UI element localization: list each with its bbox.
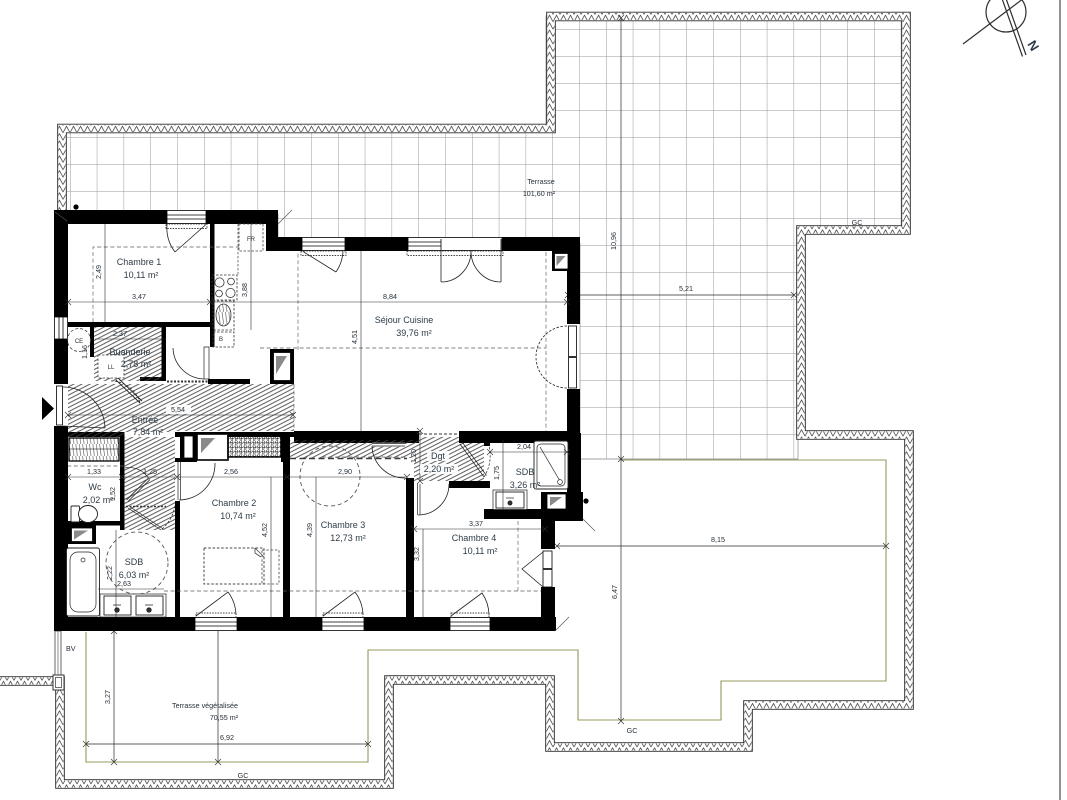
svg-text:3,47: 3,47: [132, 292, 146, 301]
svg-text:3,26 m²: 3,26 m²: [510, 480, 541, 490]
svg-text:Wc: Wc: [89, 482, 102, 492]
svg-text:Dgt: Dgt: [431, 451, 446, 461]
svg-text:4,52: 4,52: [260, 523, 269, 537]
svg-text:2,49: 2,49: [94, 265, 103, 279]
svg-text:39,76 m²: 39,76 m²: [396, 328, 432, 338]
svg-text:101,60 m²: 101,60 m²: [523, 189, 556, 198]
svg-text:Buanderie: Buanderie: [109, 347, 150, 357]
svg-text:10,11 m²: 10,11 m²: [124, 270, 159, 280]
svg-text:1,20: 1,20: [409, 449, 418, 463]
svg-text:70,55 m²: 70,55 m²: [210, 713, 239, 722]
svg-text:BV: BV: [66, 644, 76, 653]
svg-text:2,78 m²: 2,78 m²: [121, 359, 152, 369]
svg-text:3,88: 3,88: [240, 283, 249, 297]
svg-text:2,63: 2,63: [117, 579, 131, 588]
svg-text:8,84: 8,84: [383, 292, 397, 301]
svg-text:4,39: 4,39: [305, 523, 314, 537]
svg-text:5,54: 5,54: [171, 405, 185, 414]
svg-text:Séjour Cuisine: Séjour Cuisine: [375, 315, 434, 325]
svg-text:3,32: 3,32: [412, 547, 421, 561]
svg-text:10,11 m²: 10,11 m²: [463, 546, 498, 556]
svg-text:4,51: 4,51: [350, 330, 359, 344]
svg-text:Entrée: Entrée: [132, 415, 159, 425]
svg-text:6,03 m²: 6,03 m²: [119, 570, 150, 580]
svg-text:Chambre 4: Chambre 4: [452, 533, 497, 543]
svg-text:10,74 m²: 10,74 m²: [220, 511, 256, 521]
svg-text:GC: GC: [238, 771, 249, 780]
svg-text:2,37: 2,37: [113, 329, 127, 338]
svg-text:6,47: 6,47: [610, 585, 619, 599]
svg-text:1,25: 1,25: [143, 467, 157, 476]
svg-text:GC: GC: [627, 726, 638, 735]
svg-text:2,90: 2,90: [338, 467, 352, 476]
svg-text:FR: FR: [247, 237, 256, 243]
svg-text:B: B: [219, 337, 223, 343]
svg-text:2,22: 2,22: [105, 566, 114, 580]
svg-text:1,75: 1,75: [492, 466, 501, 480]
svg-text:Chambre 2: Chambre 2: [212, 498, 257, 508]
svg-text:8,15: 8,15: [711, 535, 725, 544]
svg-text:CE: CE: [75, 339, 83, 345]
svg-text:12,73 m²: 12,73 m²: [330, 533, 366, 543]
svg-text:2,20 m²: 2,20 m²: [424, 464, 455, 474]
svg-text:3,37: 3,37: [469, 519, 483, 528]
svg-text:SDB: SDB: [125, 557, 144, 567]
svg-text:2,04: 2,04: [517, 442, 531, 451]
svg-text:GC: GC: [852, 218, 863, 227]
svg-text:Chambre 3: Chambre 3: [321, 520, 366, 530]
svg-text:Terrasse végétalisée: Terrasse végétalisée: [172, 701, 238, 710]
svg-text:6,92: 6,92: [220, 733, 234, 742]
svg-text:LL: LL: [108, 365, 115, 371]
svg-text:3,27: 3,27: [103, 690, 112, 704]
svg-text:2,56: 2,56: [224, 467, 238, 476]
svg-text:2,02 m²: 2,02 m²: [83, 495, 114, 505]
svg-text:7,84 m²: 7,84 m²: [133, 427, 164, 437]
svg-text:1,33: 1,33: [87, 467, 101, 476]
svg-text:Chambre 1: Chambre 1: [117, 257, 162, 267]
svg-text:5,21: 5,21: [679, 284, 693, 293]
svg-text:1,16: 1,16: [80, 345, 89, 359]
svg-text:SDB: SDB: [516, 467, 535, 477]
svg-text:10,96: 10,96: [609, 232, 618, 250]
svg-text:Terrasse: Terrasse: [527, 177, 555, 186]
